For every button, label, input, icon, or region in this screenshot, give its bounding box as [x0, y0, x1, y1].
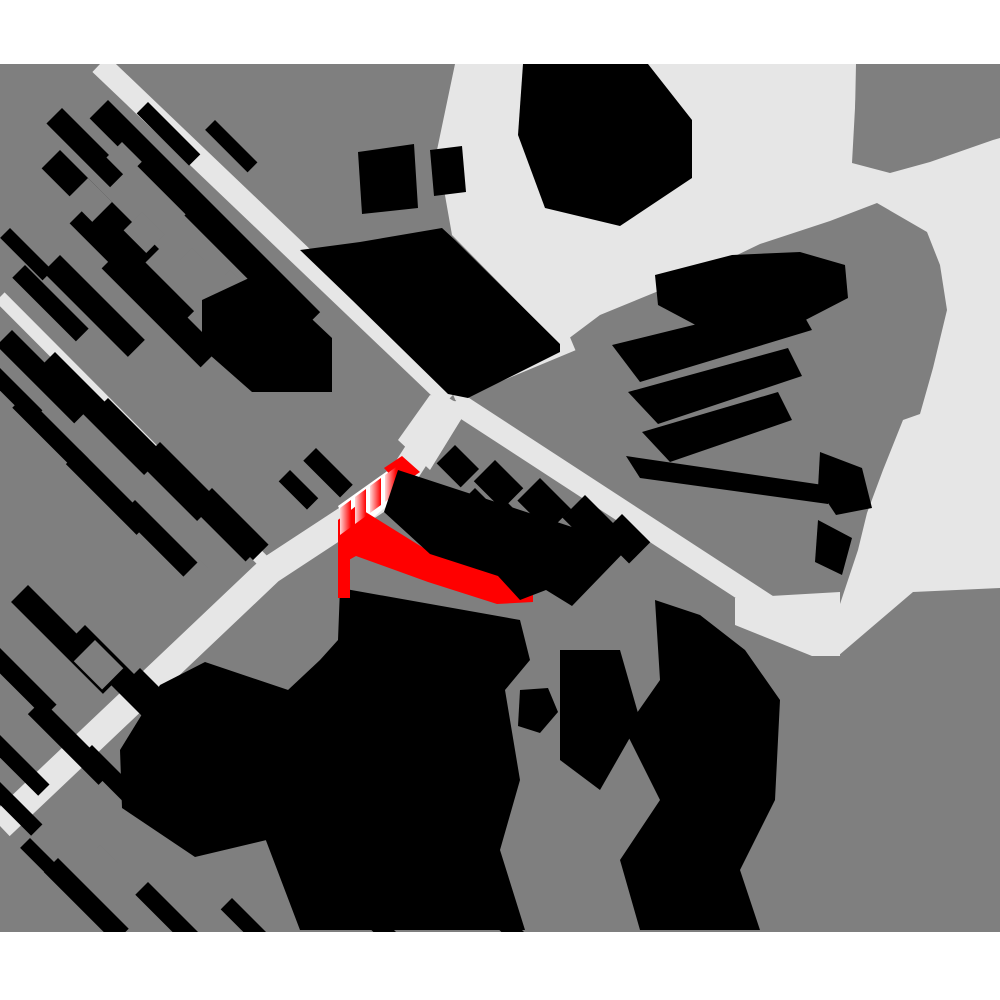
north-small-2 — [430, 146, 466, 196]
map-viewport — [0, 0, 1000, 1000]
north-small-1 — [358, 144, 418, 214]
screenshot-root: { "meta": { "type": "axonometric-city-ma… — [0, 0, 1000, 1000]
map-layers — [0, 64, 1000, 966]
map-canvas[interactable] — [0, 0, 1000, 1000]
